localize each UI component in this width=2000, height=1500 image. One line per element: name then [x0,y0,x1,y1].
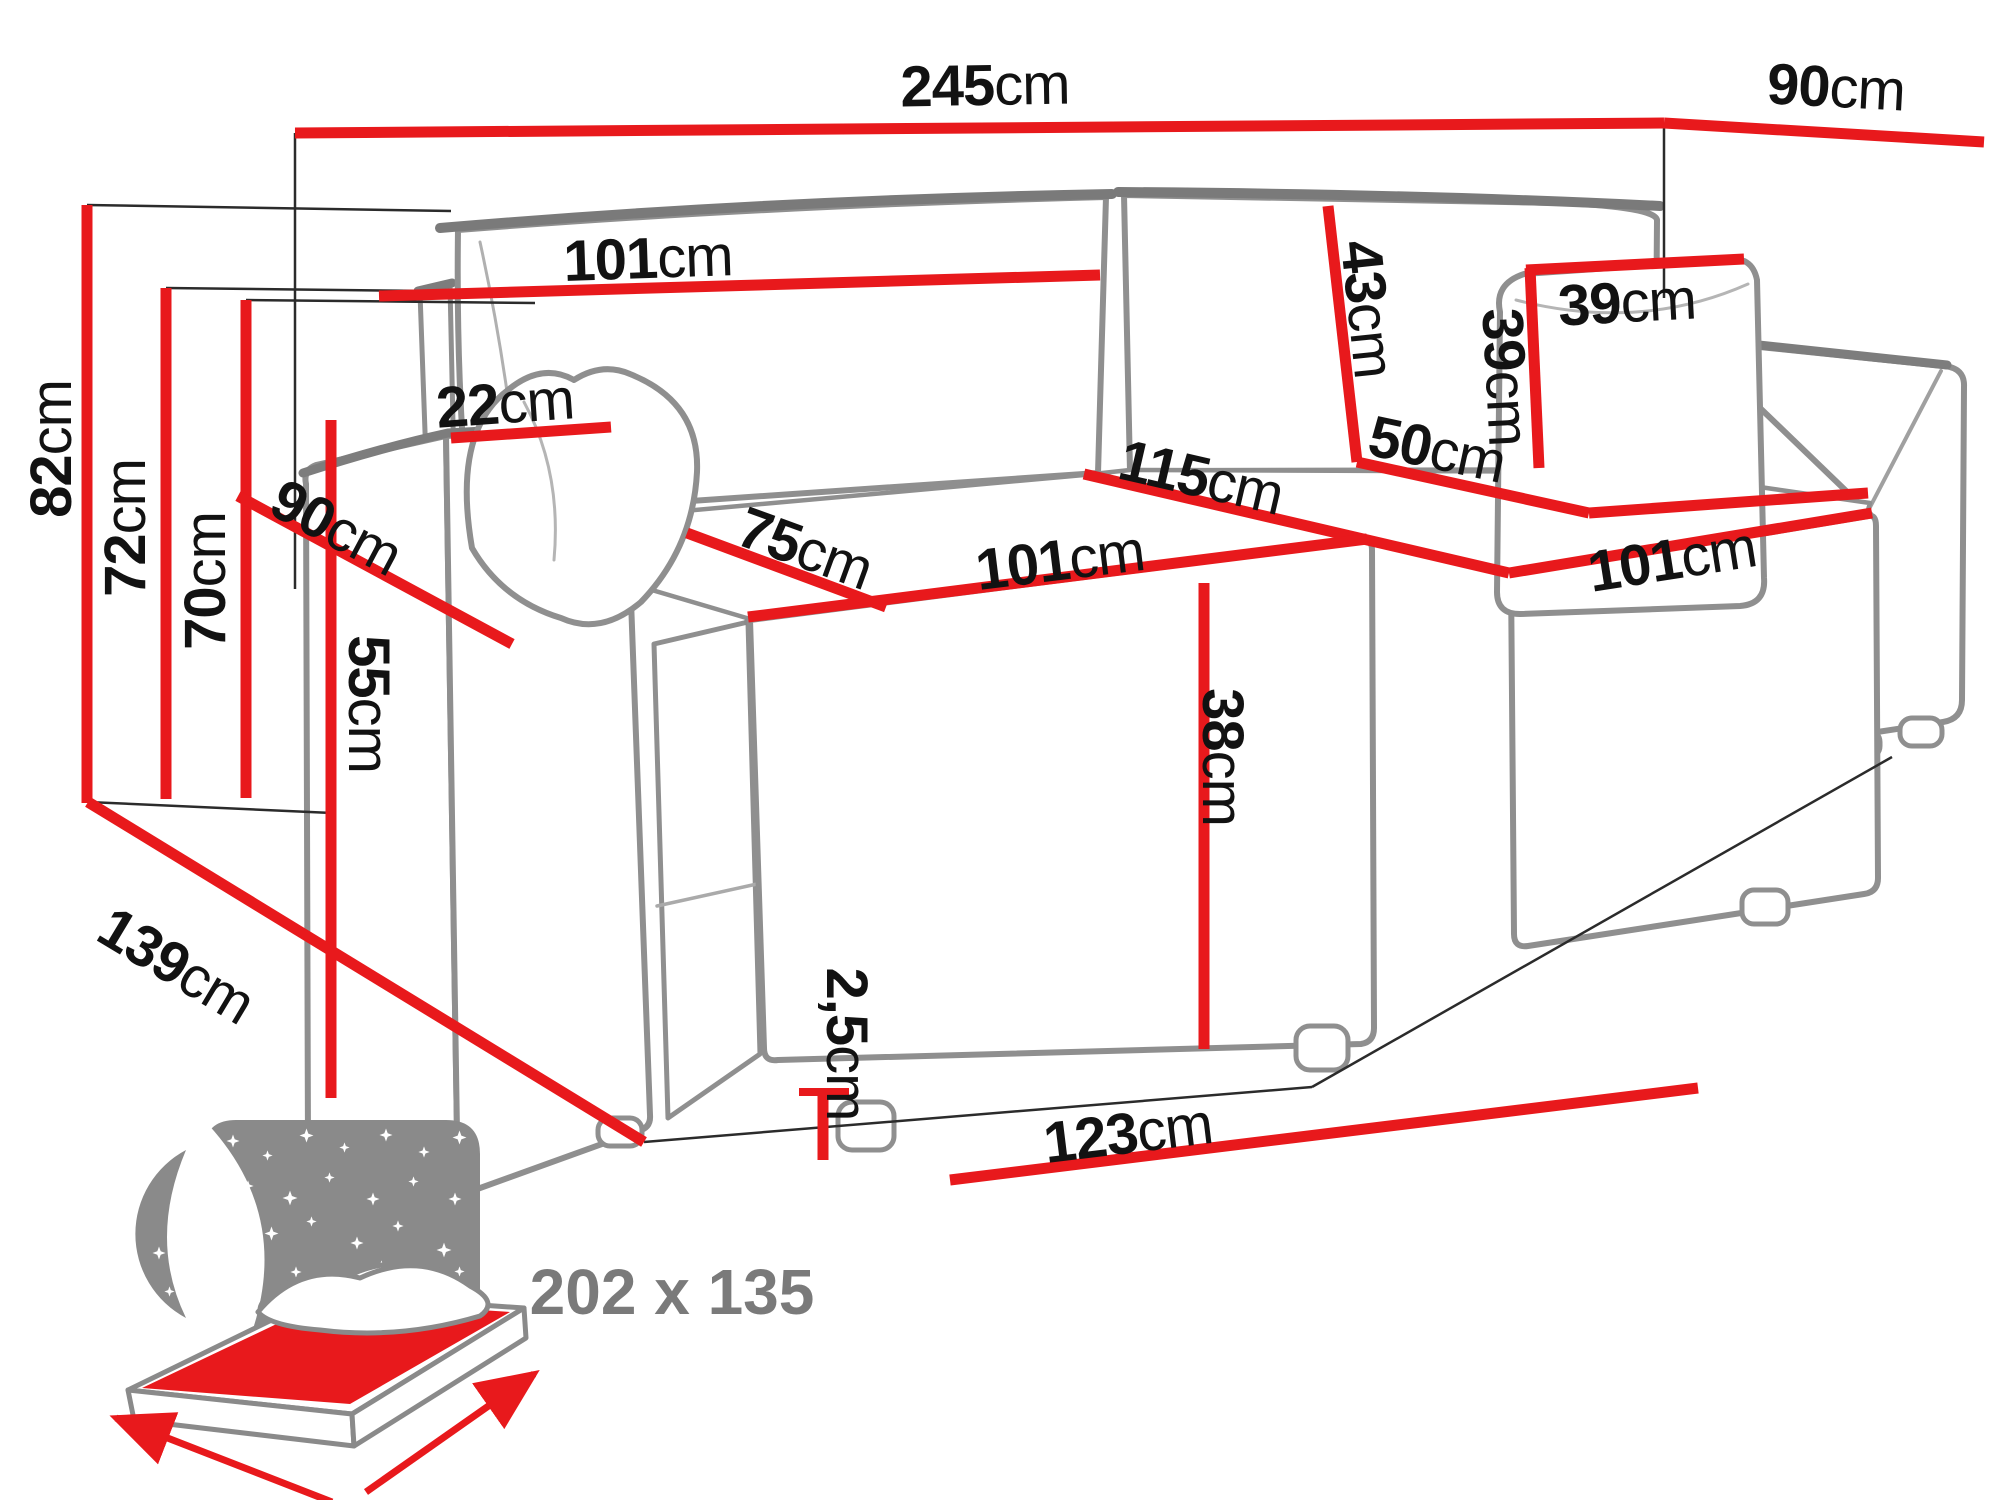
dim-unit: cm [1676,514,1761,590]
dim-value: 38 [1190,688,1255,751]
moon-crescent [135,1150,186,1318]
sofa-diagram-canvas [0,0,2000,1500]
dim-unit: cm [1190,751,1255,826]
dim-leg-height-label: 2,5cm [817,968,875,1121]
dim-unit: cm [814,1045,879,1120]
dim-unit: cm [994,52,1070,118]
sofa-leg [1900,718,1942,746]
dim-value: 245 [900,53,995,120]
dim-unit: cm [1133,1091,1216,1165]
dim-value: 90 [1765,51,1831,119]
dim-armrest-width-label: 22cm [434,370,576,437]
dim-seat-height-label: 38cm [1193,688,1251,826]
bed-icon [116,1120,534,1500]
dim-value: 70 [173,587,238,650]
sofa-leg [1296,1026,1348,1070]
dim-armrest-height-label: 55cm [339,635,397,773]
dim-unit: cm [336,698,401,773]
dim-value: 22 [434,372,501,441]
dim-value: 101 [972,527,1073,603]
dim-value: 2,5 [814,968,879,1046]
dim-value: 55 [336,635,401,698]
dim-unit: cm [1828,55,1907,124]
dim-value: 82 [19,455,84,518]
dim-unit: cm [656,223,734,291]
dim-unit: cm [1619,266,1698,335]
dim-line-total-width [295,123,1664,133]
dim-unit: cm [19,380,84,455]
dim-value: 123 [1040,1100,1141,1176]
dim-total-width-label: 245cm [900,56,1070,117]
sofa-base-side [654,622,760,1118]
dim-value: 72 [93,534,158,597]
dim-value: 43 [1328,237,1399,306]
dim-backrest-height2-label: 70cm [177,512,235,650]
dim-total-depth-label: 90cm [1766,55,1907,120]
dim-backrest-height-label: 72cm [97,459,155,597]
dim-unit: cm [173,512,238,587]
dim-line-total-depth [1664,123,1984,142]
dim-backrest-width-label: 101cm [562,227,733,291]
dim-back-cushion-height-label: 43cm [1331,237,1403,380]
sofa-leg [1742,890,1788,924]
sofa-sketch [303,192,1964,1232]
dim-unit: cm [496,366,576,436]
sleeping-area-size-label: 202 x 135 [530,1260,815,1324]
dim-value: 39 [1469,306,1537,372]
dim-unit: cm [93,459,158,534]
dim-unit: cm [1335,299,1408,381]
dim-unit: cm [1065,518,1148,592]
dimension-diagram: 245cm 90cm 82cm 72cm 70cm 139cm 22cm 90c… [0,0,2000,1500]
dim-value: 101 [562,226,658,294]
dim-value: 39 [1556,270,1622,338]
dim-pillow-width-label: 39cm [1557,270,1698,335]
dim-total-height-label: 82cm [23,380,81,518]
